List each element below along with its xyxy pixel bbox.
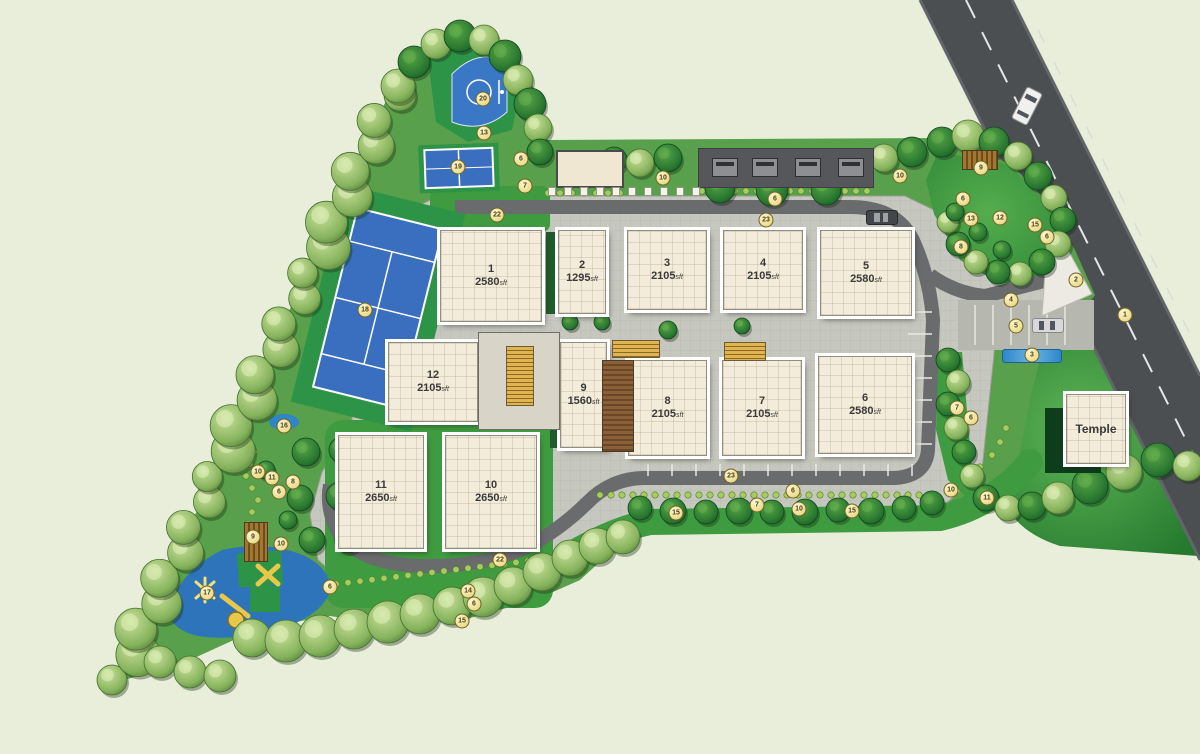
hedge-icon: [369, 576, 375, 582]
unit-area: 2105sft: [652, 408, 684, 422]
legend-marker-6: 6: [964, 411, 979, 426]
colonnade-pillar: [644, 187, 652, 196]
hedge-icon: [696, 492, 702, 498]
building-unit-7: 72105sft: [722, 360, 802, 456]
legend-marker-19: 19: [451, 160, 466, 175]
legend-marker-20: 20: [476, 92, 491, 107]
wood-deck: [602, 360, 634, 452]
hedge-icon: [557, 190, 563, 196]
building-unit-6: 62580sft: [818, 356, 912, 454]
building-unit-4: 42105sft: [723, 230, 803, 310]
unit-area: 2580sft: [850, 273, 882, 287]
hedge-icon: [773, 492, 779, 498]
building-unit-2: 21295sft: [558, 230, 606, 314]
legend-marker-22: 22: [493, 553, 508, 568]
unit-area: 2650sft: [365, 492, 397, 506]
legend-marker-10: 10: [893, 169, 908, 184]
building-unit-5: 52580sft: [820, 230, 912, 316]
building-unit-8: 82105sft: [628, 360, 707, 456]
legend-marker-3: 3: [1025, 348, 1040, 363]
unit-number: 4: [760, 257, 766, 270]
hedge-icon: [605, 190, 611, 196]
unit-area: 2105sft: [746, 408, 778, 422]
unit-area: 2105sft: [747, 270, 779, 284]
hedge-icon: [608, 492, 614, 498]
hedge-icon: [441, 568, 447, 574]
colonnade-pillar: [660, 187, 668, 196]
hedge-icon: [729, 492, 735, 498]
unit-number: 9: [580, 382, 586, 395]
hedge-icon: [663, 492, 669, 498]
hedge-icon: [255, 497, 261, 503]
hedge-icon: [850, 492, 856, 498]
temple: Temple: [1066, 394, 1126, 464]
hedge-icon: [997, 439, 1003, 445]
legend-marker-6: 6: [1040, 230, 1055, 245]
parked-car-icon: [752, 158, 778, 177]
hedge-icon: [429, 569, 435, 575]
hedge-icon: [817, 492, 823, 498]
hedge-icon: [743, 188, 749, 194]
hedge-icon: [393, 574, 399, 580]
hedge-icon: [345, 579, 351, 585]
hedge-icon: [417, 571, 423, 577]
hedge-icon: [707, 492, 713, 498]
hedge-icon: [652, 492, 658, 498]
legend-marker-4: 4: [1004, 293, 1019, 308]
hedge-icon: [853, 188, 859, 194]
unit-area: 1295sft: [566, 272, 598, 286]
hedge-icon: [453, 566, 459, 572]
colonnade-pillar: [564, 187, 572, 196]
legend-marker-6: 6: [768, 192, 783, 207]
legend-marker-7: 7: [750, 498, 765, 513]
hedge-icon: [619, 492, 625, 498]
legend-marker-9: 9: [246, 530, 261, 545]
legend-marker-9: 9: [974, 161, 989, 176]
legend-marker-15: 15: [1028, 218, 1043, 233]
parking-lot: [958, 300, 1094, 350]
hedge-icon: [806, 492, 812, 498]
unit-area: 2580sft: [849, 405, 881, 419]
hedge-icon: [828, 492, 834, 498]
legend-marker-6: 6: [323, 580, 338, 595]
colonnade-pillar: [580, 187, 588, 196]
amenity-pavilion: [556, 150, 624, 188]
parked-car-icon: [712, 158, 738, 177]
legend-marker-11: 11: [980, 491, 995, 506]
legend-marker-7: 7: [950, 401, 965, 416]
hedge-icon: [989, 452, 995, 458]
lift-bank: [612, 340, 660, 358]
building-unit-10: 102650sft: [445, 435, 537, 549]
legend-marker-6: 6: [514, 152, 529, 167]
unit-area: 2580sft: [475, 276, 507, 290]
colonnade-pillar: [548, 187, 556, 196]
colonnade-pillar: [612, 187, 620, 196]
legend-marker-23: 23: [724, 469, 739, 484]
legend-marker-13: 13: [477, 126, 492, 141]
staircase: [724, 342, 766, 361]
hedge-icon: [357, 578, 363, 584]
legend-marker-6: 6: [786, 484, 801, 499]
colonnade-pillar: [628, 187, 636, 196]
hedge-icon: [674, 492, 680, 498]
site-plan: Temple 12580sft21295sft32105sft42105sft5…: [0, 0, 1200, 754]
hedge-icon: [861, 492, 867, 498]
temple-label: Temple: [1075, 422, 1116, 436]
legend-marker-17: 17: [200, 586, 215, 601]
unit-number: 3: [664, 257, 670, 270]
legend-marker-16: 16: [277, 419, 292, 434]
car-icon: [866, 210, 898, 225]
legend-marker-8: 8: [954, 240, 969, 255]
staircase: [506, 346, 534, 406]
car-icon: [1032, 318, 1064, 333]
unit-area: 1560sft: [568, 395, 600, 409]
legend-marker-10: 10: [251, 465, 266, 480]
legend-marker-6: 6: [272, 485, 287, 500]
building-unit-1: 12580sft: [440, 230, 542, 322]
hedge-icon: [839, 492, 845, 498]
legend-marker-7: 7: [518, 179, 533, 194]
colonnade-pillar: [596, 187, 604, 196]
legend-marker-10: 10: [656, 171, 671, 186]
hedge-icon: [685, 492, 691, 498]
unit-number: 2: [579, 259, 585, 272]
legend-marker-10: 10: [944, 483, 959, 498]
hedge-icon: [718, 492, 724, 498]
hedge-icon: [405, 572, 411, 578]
hedge-icon: [477, 564, 483, 570]
hedge-icon: [740, 492, 746, 498]
legend-marker-5: 5: [1009, 319, 1024, 334]
legend-marker-8: 8: [286, 475, 301, 490]
hedge-icon: [872, 492, 878, 498]
hedge-icon: [762, 492, 768, 498]
colonnade-pillar: [692, 187, 700, 196]
building-unit-12: 122105sft: [388, 342, 478, 422]
hedge-icon: [513, 559, 519, 565]
unit-number: 11: [375, 479, 387, 492]
hedge-icon: [381, 575, 387, 581]
legend-marker-13: 13: [964, 212, 979, 227]
legend-marker-6: 6: [467, 597, 482, 612]
hedge-icon: [864, 188, 870, 194]
unit-number: 10: [485, 479, 497, 492]
colonnade-pillar: [676, 187, 684, 196]
hedge-icon: [1003, 425, 1009, 431]
legend-marker-23: 23: [759, 213, 774, 228]
unit-number: 6: [862, 392, 868, 405]
unit-number: 12: [427, 369, 439, 382]
unit-area: 2105sft: [417, 382, 449, 396]
unit-area: 2650sft: [475, 492, 507, 506]
unit-area: 2105sft: [651, 270, 683, 284]
legend-marker-15: 15: [455, 614, 470, 629]
legend-marker-22: 22: [490, 208, 505, 223]
legend-marker-12: 12: [993, 211, 1008, 226]
unit-number: 7: [759, 395, 765, 408]
legend-marker-10: 10: [274, 537, 289, 552]
hedge-icon: [798, 188, 804, 194]
hedge-icon: [597, 492, 603, 498]
building-unit-11: 112650sft: [338, 435, 424, 549]
unit-number: 8: [664, 395, 670, 408]
unit-number: 1: [488, 263, 494, 276]
hedge-icon: [883, 492, 889, 498]
legend-marker-15: 15: [669, 506, 684, 521]
parked-car-icon: [795, 158, 821, 177]
parked-car-icon: [838, 158, 864, 177]
legend-marker-1: 1: [1118, 308, 1133, 323]
building-unit-9: 91560sft: [560, 342, 607, 448]
hedge-icon: [249, 509, 255, 515]
legend-marker-10: 10: [792, 502, 807, 517]
legend-marker-18: 18: [358, 303, 373, 318]
legend-marker-11: 11: [265, 471, 280, 486]
building-unit-3: 32105sft: [627, 230, 707, 310]
unit-number: 5: [863, 260, 869, 273]
legend-marker-6: 6: [956, 192, 971, 207]
hedge-icon: [465, 565, 471, 571]
hedge-icon: [249, 485, 255, 491]
legend-marker-15: 15: [845, 504, 860, 519]
legend-marker-2: 2: [1069, 273, 1084, 288]
